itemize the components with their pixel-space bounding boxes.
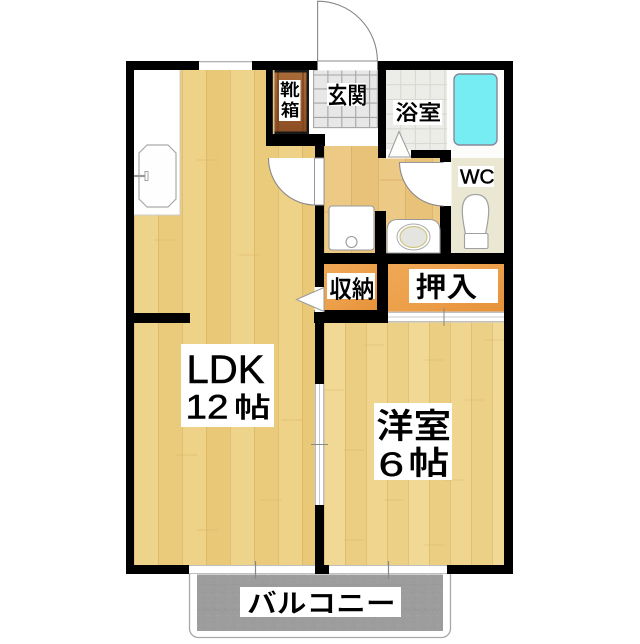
svg-text:12: 12 <box>186 389 229 427</box>
svg-text:LDK: LDK <box>187 348 265 392</box>
svg-text:WC: WC <box>460 166 494 188</box>
svg-text:6: 6 <box>379 445 405 484</box>
